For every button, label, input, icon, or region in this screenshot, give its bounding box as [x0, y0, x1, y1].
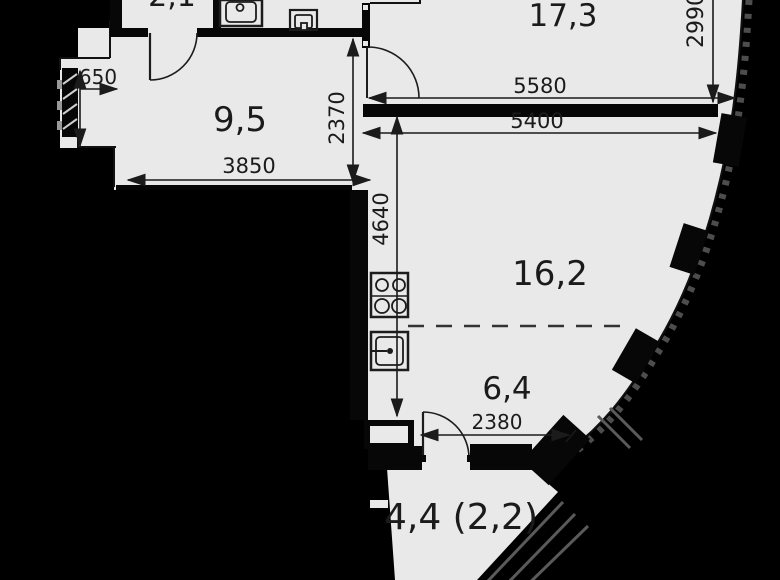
room-label-balcony: 4,4 (2,2) [384, 497, 538, 538]
wall-top-right [197, 28, 368, 37]
wall-hall-south [116, 185, 352, 190]
dim-5400: 5400 [510, 109, 563, 133]
dim-2370: 2370 [325, 91, 349, 144]
kitchen-sink-icon [371, 332, 408, 370]
wall-top-left [110, 28, 148, 37]
wall-kitchen-west [350, 190, 368, 420]
door-jamb-bottom [363, 41, 368, 46]
room-label-17-3: 17,3 [528, 0, 597, 34]
shaft-interior [370, 426, 408, 443]
wall-hall-left [110, 0, 122, 31]
room-label-9-5: 9,5 [213, 100, 267, 140]
door-jamb-top [363, 5, 368, 10]
dim-5580: 5580 [513, 74, 566, 98]
dim-4640: 4640 [369, 192, 393, 245]
floor-plan-screenshot: 650 2370 3850 4640 2990 5580 5400 2380 2… [0, 0, 780, 580]
dim-2380: 2380 [472, 410, 523, 434]
wall-balcony-south-right [470, 444, 532, 470]
room-label-hallway: 2,1 [148, 0, 196, 14]
dim-2990: 2990 [684, 0, 709, 48]
room-label-16-2: 16,2 [512, 254, 588, 294]
balcony-door-jamb-left [420, 455, 426, 462]
balcony-door-jamb-right [467, 455, 473, 462]
room-label-6-4: 6,4 [482, 371, 531, 407]
floor-plan-canvas: 650 2370 3850 4640 2990 5580 5400 2380 2… [0, 0, 780, 580]
wall-balcony-south-left [368, 446, 422, 470]
dim-650: 650 [79, 65, 117, 89]
dim-3850: 3850 [222, 154, 275, 178]
stove-icon [371, 273, 408, 317]
